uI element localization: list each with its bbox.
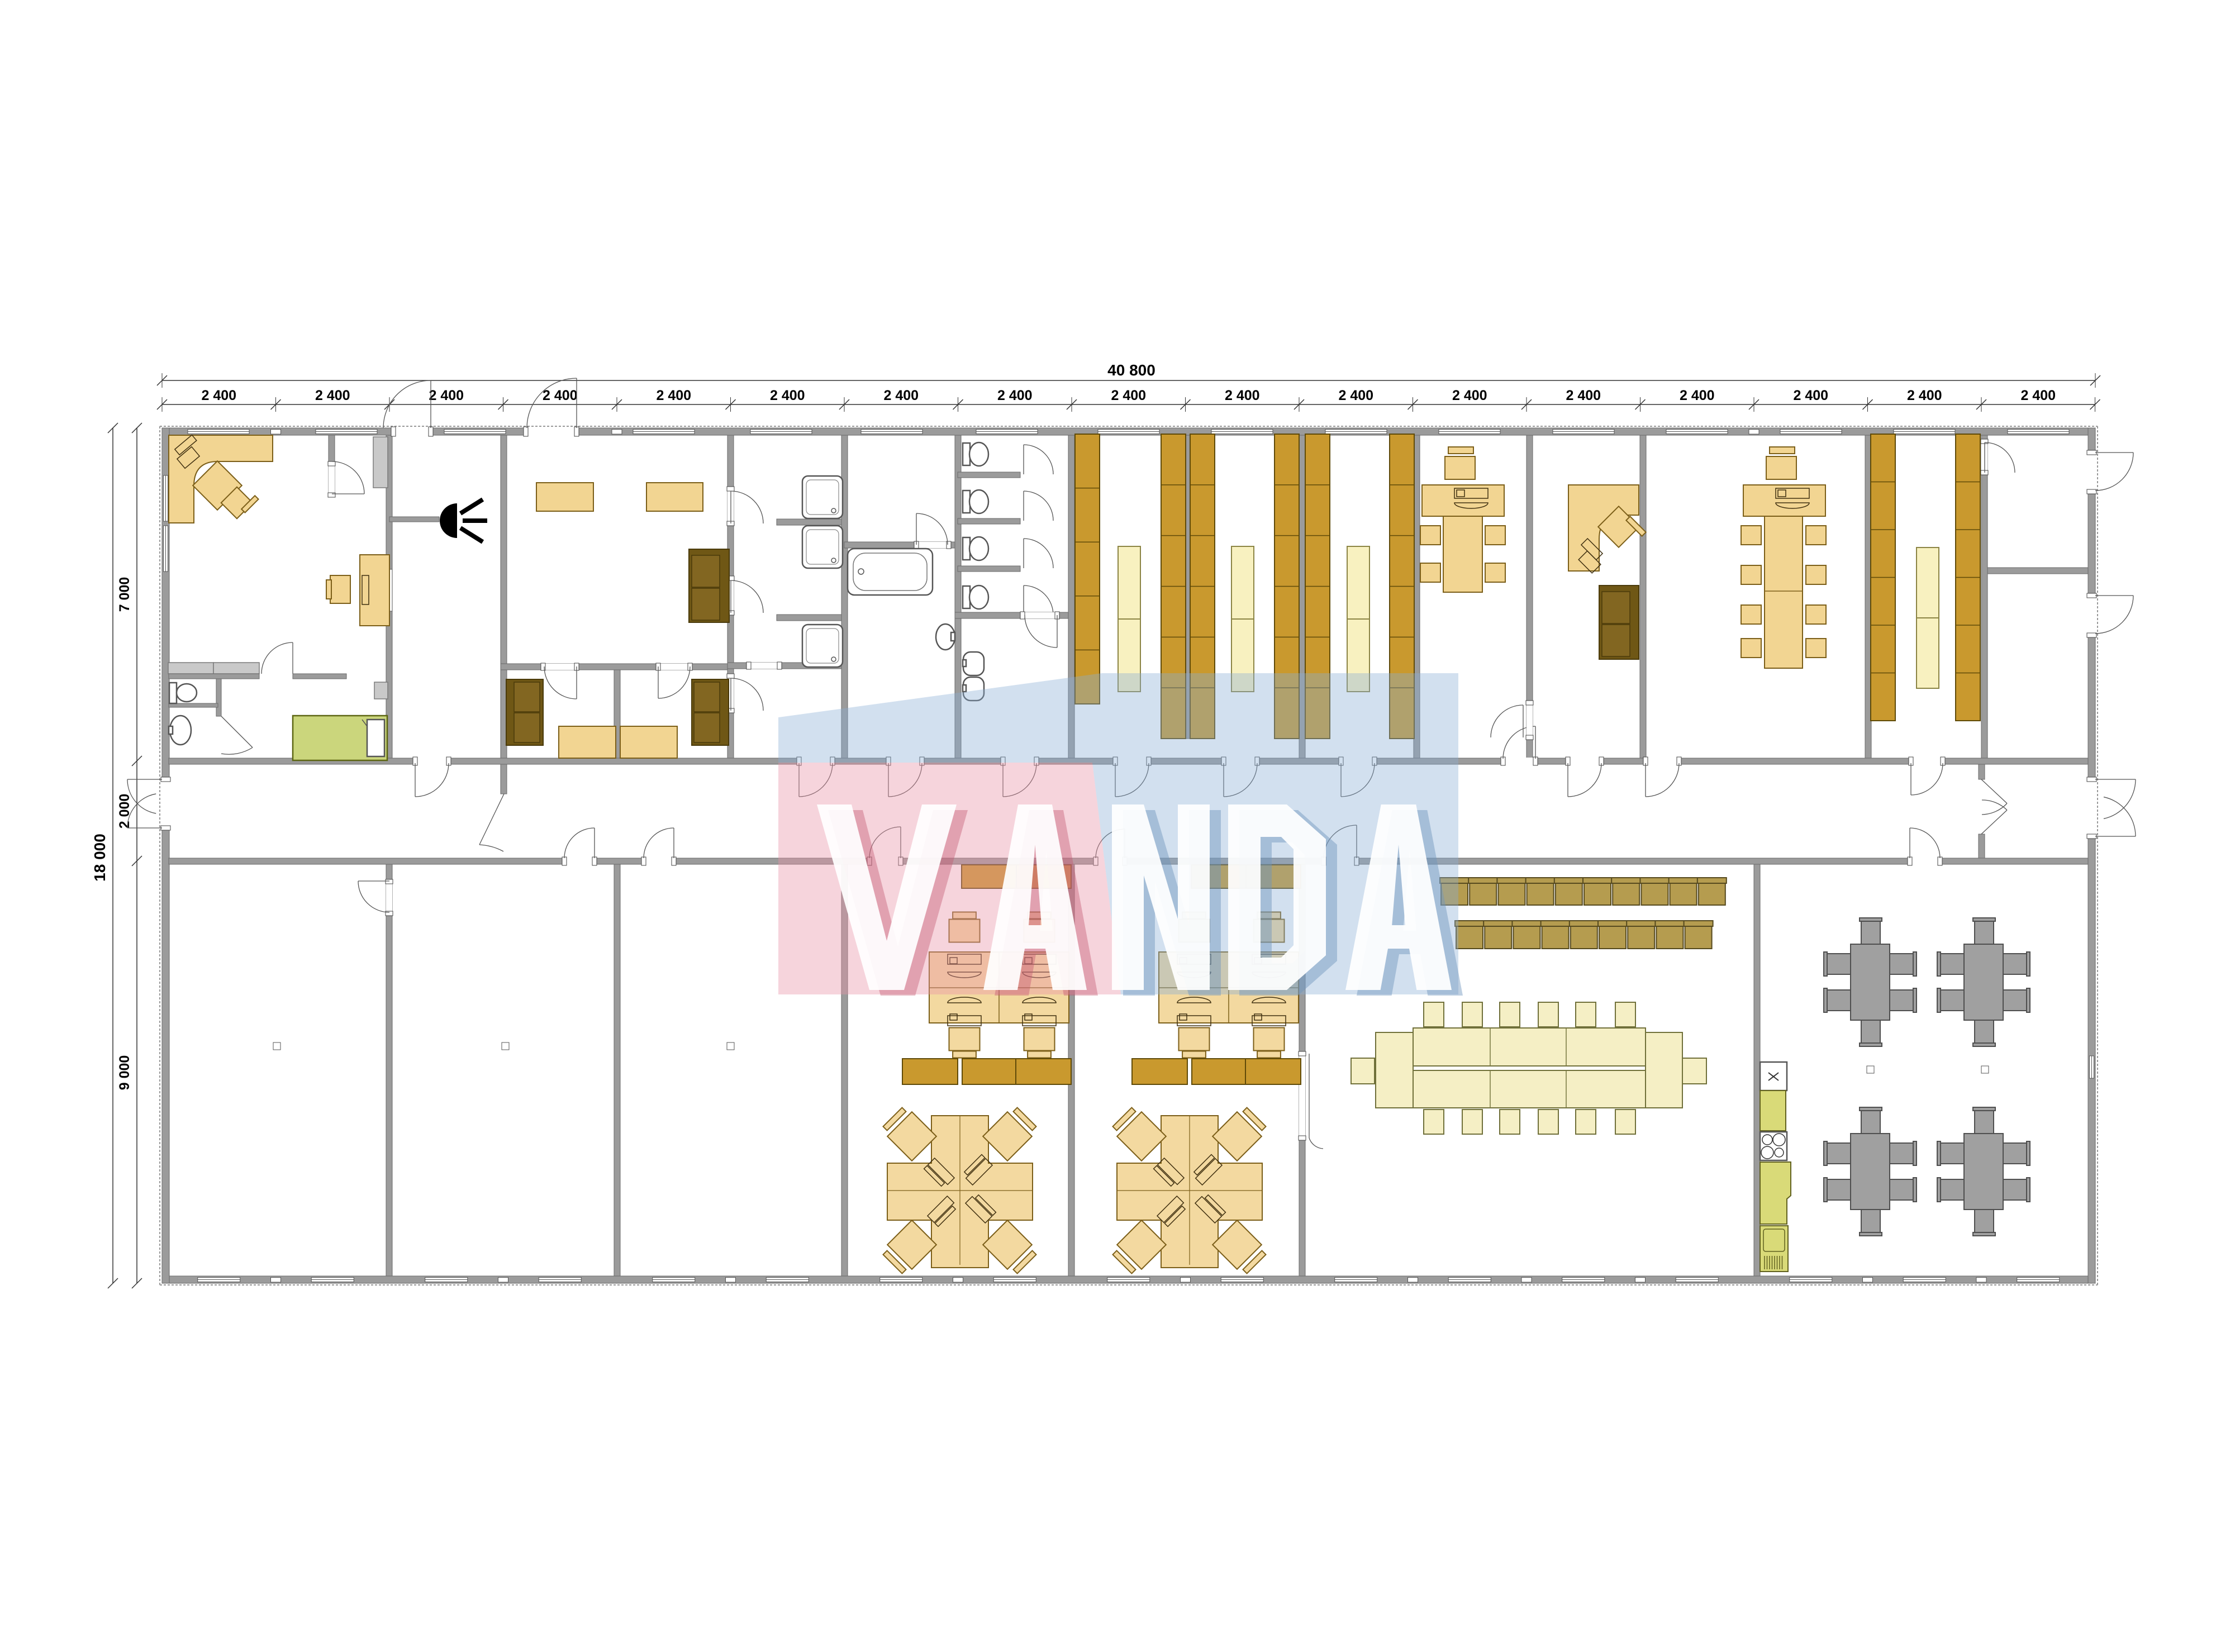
svg-text:2 400: 2 400	[1793, 388, 1828, 403]
svg-text:2 400: 2 400	[1111, 388, 1146, 403]
svg-text:2 400: 2 400	[543, 388, 578, 403]
svg-text:7 000: 7 000	[117, 577, 132, 612]
svg-text:2 400: 2 400	[883, 388, 919, 403]
svg-text:2 400: 2 400	[997, 388, 1033, 403]
svg-text:2 000: 2 000	[117, 794, 132, 829]
svg-text:2 400: 2 400	[1566, 388, 1601, 403]
svg-text:2 400: 2 400	[1452, 388, 1487, 403]
svg-text:40 800: 40 800	[1107, 361, 1155, 379]
svg-text:2 400: 2 400	[2020, 388, 2056, 403]
svg-text:2 400: 2 400	[1225, 388, 1260, 403]
svg-text:2 400: 2 400	[1338, 388, 1373, 403]
svg-text:2 400: 2 400	[1907, 388, 1942, 403]
svg-text:2 400: 2 400	[201, 388, 236, 403]
svg-text:18 000: 18 000	[91, 834, 108, 882]
svg-text:2 400: 2 400	[429, 388, 464, 403]
svg-text:2 400: 2 400	[770, 388, 805, 403]
svg-text:2 400: 2 400	[656, 388, 691, 403]
svg-text:2 400: 2 400	[1680, 388, 1715, 403]
svg-text:2 400: 2 400	[315, 388, 350, 403]
svg-text:9 000: 9 000	[117, 1055, 132, 1091]
